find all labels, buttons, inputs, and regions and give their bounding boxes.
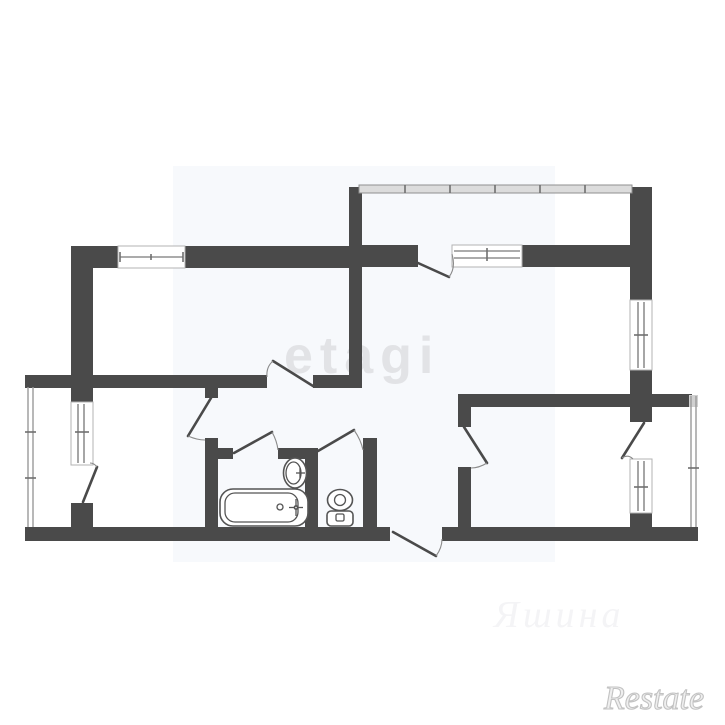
door-living-balcony: [418, 254, 453, 277]
door-bathroom: [234, 432, 278, 453]
right-loggia-glazing: [688, 395, 699, 527]
watermark-restate: Restate: [604, 682, 704, 716]
wall-segment: [205, 388, 218, 398]
wall-segment: [458, 394, 471, 427]
door-bedroom1: [267, 361, 313, 386]
wall-segment: [363, 438, 377, 529]
wall-segment: [185, 246, 361, 268]
wall-segment: [362, 245, 418, 267]
wall-segment: [630, 513, 652, 529]
door-kitchen-loggia: [622, 423, 644, 459]
wall-segment: [218, 448, 233, 459]
walls: [25, 187, 698, 541]
window-living-right: [630, 300, 652, 370]
wall-segment: [313, 375, 361, 388]
window-living-balcony: [452, 245, 522, 267]
watermark-script: Яшина: [494, 596, 625, 634]
window-bedroom2-loggia: [71, 402, 93, 465]
floor-plan-image: etagi: [0, 0, 725, 725]
door-bedroom2-loggia: [83, 463, 97, 502]
wall-segment: [25, 527, 390, 541]
door-bedroom2: [188, 398, 211, 440]
sink-icon: [284, 458, 307, 488]
door-toilet: [318, 430, 363, 451]
wall-segment: [458, 394, 692, 407]
wall-segment: [349, 187, 362, 388]
toilet-icon: [327, 490, 353, 527]
wall-segment: [205, 438, 218, 529]
wall-segment: [25, 375, 267, 388]
wall-segment: [522, 245, 630, 267]
door-entrance: [393, 532, 442, 556]
wall-segment: [458, 467, 471, 530]
left-loggia-glazing: [25, 387, 36, 527]
wall-segment: [71, 503, 93, 529]
bathtub-icon: [220, 489, 308, 526]
window-kitchen-loggia: [630, 459, 652, 513]
wall-segment: [442, 527, 698, 541]
wall-segment: [630, 187, 652, 300]
door-kitchen: [464, 427, 487, 468]
window-bedroom1: [118, 246, 185, 268]
balcony-railing: [359, 185, 632, 193]
